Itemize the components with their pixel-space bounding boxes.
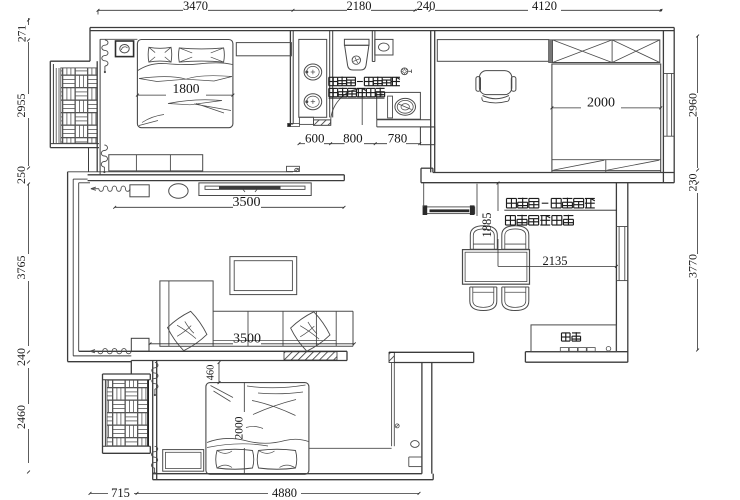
svg-text:3470: 3470 bbox=[183, 0, 208, 13]
svg-text:800: 800 bbox=[343, 131, 363, 146]
svg-text:460: 460 bbox=[206, 365, 217, 381]
svg-text:3500: 3500 bbox=[233, 331, 261, 346]
svg-text:271: 271 bbox=[17, 25, 29, 43]
svg-text:2460: 2460 bbox=[14, 405, 28, 429]
svg-text:2180: 2180 bbox=[347, 0, 372, 13]
svg-text:2000: 2000 bbox=[234, 416, 246, 439]
svg-text:715: 715 bbox=[111, 486, 130, 500]
svg-text:780: 780 bbox=[388, 131, 408, 146]
svg-text:2135: 2135 bbox=[543, 254, 568, 268]
svg-text:3770: 3770 bbox=[685, 254, 699, 278]
svg-text:2000: 2000 bbox=[587, 95, 615, 110]
svg-text:2955: 2955 bbox=[14, 94, 28, 118]
svg-text:240: 240 bbox=[417, 0, 436, 13]
svg-text:240: 240 bbox=[14, 348, 28, 366]
svg-text:2960: 2960 bbox=[685, 93, 699, 117]
svg-text:230: 230 bbox=[685, 174, 699, 192]
svg-text:4880: 4880 bbox=[272, 486, 297, 500]
svg-text:250: 250 bbox=[14, 166, 28, 184]
svg-text:600: 600 bbox=[305, 131, 325, 146]
svg-text:3765: 3765 bbox=[14, 256, 28, 280]
svg-text:1885: 1885 bbox=[480, 213, 494, 238]
svg-text:1800: 1800 bbox=[173, 81, 200, 96]
svg-text:3500: 3500 bbox=[233, 195, 261, 210]
svg-text:4120: 4120 bbox=[532, 0, 557, 13]
